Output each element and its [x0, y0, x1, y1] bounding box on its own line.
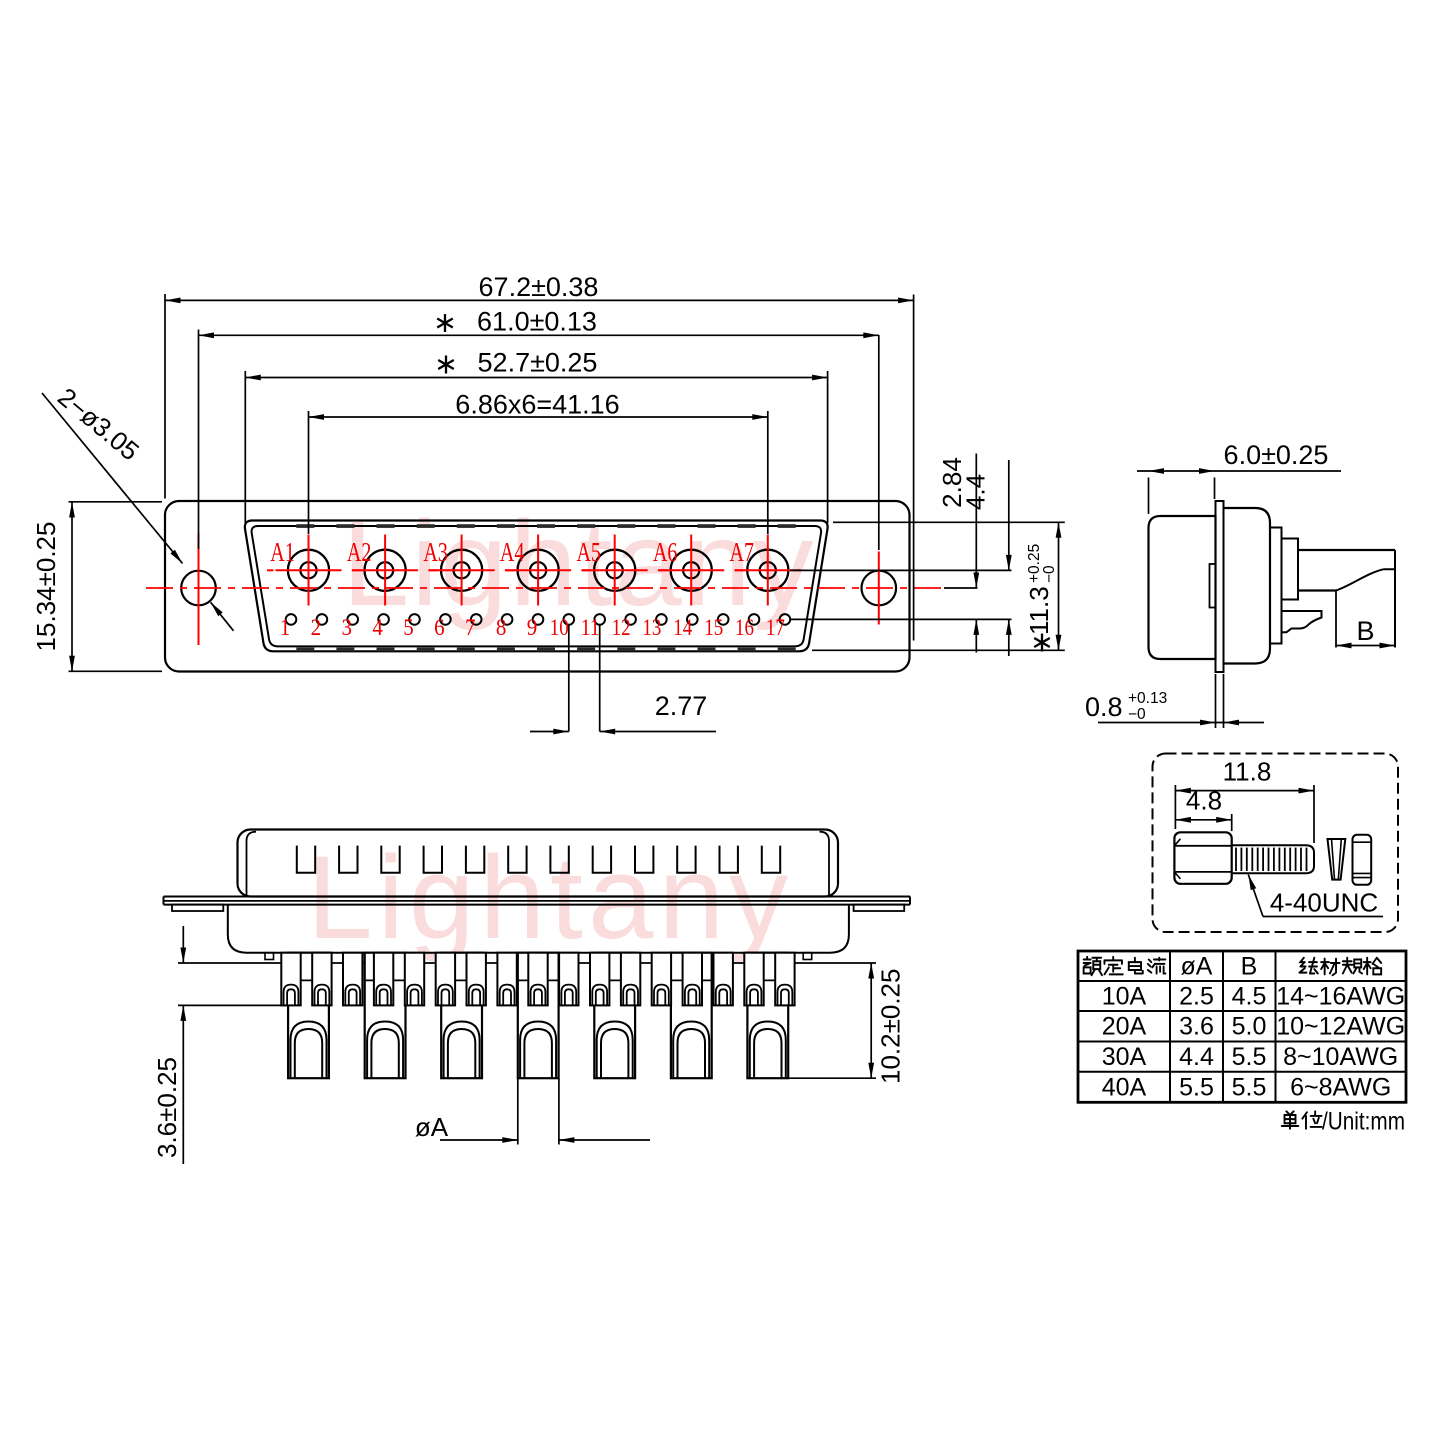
- svg-text:4.5: 4.5: [1232, 983, 1267, 1011]
- svg-text:A3: A3: [423, 537, 448, 567]
- svg-text:4.4: 4.4: [960, 474, 990, 510]
- svg-text:6.0±0.25: 6.0±0.25: [1224, 440, 1329, 470]
- svg-text:3: 3: [341, 615, 352, 640]
- svg-text:52.7±0.25: 52.7±0.25: [478, 348, 598, 378]
- svg-text:4: 4: [372, 615, 383, 640]
- svg-text:13: 13: [642, 615, 661, 640]
- svg-text:4.8: 4.8: [1186, 786, 1222, 816]
- svg-text:14: 14: [673, 615, 692, 640]
- svg-text:A7: A7: [730, 537, 755, 567]
- svg-text:10A: 10A: [1102, 983, 1147, 1011]
- svg-text:8~10AWG: 8~10AWG: [1283, 1043, 1398, 1071]
- svg-text:A6: A6: [653, 537, 678, 567]
- svg-text:B: B: [1356, 616, 1374, 646]
- svg-text:6.86x6=41.16: 6.86x6=41.16: [455, 390, 619, 420]
- svg-text:−0: −0: [1128, 706, 1146, 723]
- svg-text:2: 2: [311, 615, 322, 640]
- svg-text:5.5: 5.5: [1179, 1074, 1214, 1102]
- svg-text:14~16AWG: 14~16AWG: [1276, 983, 1405, 1011]
- svg-text:2.77: 2.77: [655, 691, 708, 721]
- svg-text:10: 10: [550, 615, 569, 640]
- svg-text:20A: 20A: [1102, 1013, 1147, 1041]
- svg-text:4.4: 4.4: [1179, 1043, 1214, 1071]
- svg-text:0.8: 0.8: [1085, 692, 1123, 722]
- svg-text:17: 17: [766, 615, 785, 640]
- svg-text:5: 5: [403, 615, 414, 640]
- svg-text:4-40UNC: 4-40UNC: [1270, 888, 1378, 918]
- svg-text:øA: øA: [415, 1112, 449, 1142]
- svg-text:5.0: 5.0: [1232, 1013, 1267, 1041]
- svg-text:2.5: 2.5: [1179, 983, 1214, 1011]
- svg-text:9: 9: [527, 615, 538, 640]
- svg-text:11: 11: [581, 615, 600, 640]
- svg-text:/Unit:mm: /Unit:mm: [1322, 1108, 1405, 1136]
- svg-text:A2: A2: [347, 537, 372, 567]
- svg-text:8: 8: [496, 615, 507, 640]
- svg-text:A5: A5: [576, 537, 601, 567]
- svg-text:11.3: 11.3: [1024, 586, 1054, 635]
- svg-text:61.0±0.13: 61.0±0.13: [477, 307, 597, 337]
- svg-text:5.5: 5.5: [1232, 1043, 1267, 1071]
- svg-text:1: 1: [280, 615, 291, 640]
- svg-text:16: 16: [735, 615, 754, 640]
- svg-text:15.34±0.25: 15.34±0.25: [31, 522, 61, 652]
- svg-text:øA: øA: [1181, 953, 1213, 981]
- svg-text:A4: A4: [500, 537, 525, 567]
- svg-text:3.6: 3.6: [1179, 1013, 1214, 1041]
- svg-text:67.2±0.38: 67.2±0.38: [479, 272, 599, 302]
- svg-text:11.8: 11.8: [1223, 757, 1272, 787]
- svg-text:30A: 30A: [1102, 1043, 1147, 1071]
- svg-text:10.2±0.25: 10.2±0.25: [876, 969, 906, 1084]
- svg-text:10~12AWG: 10~12AWG: [1276, 1013, 1405, 1041]
- svg-text:7: 7: [465, 615, 476, 640]
- svg-text:A1: A1: [270, 537, 295, 567]
- svg-text:15: 15: [704, 615, 723, 640]
- svg-text:40A: 40A: [1102, 1074, 1147, 1102]
- svg-text:−0: −0: [1041, 565, 1058, 583]
- svg-text:12: 12: [612, 615, 631, 640]
- svg-text:6: 6: [434, 615, 445, 640]
- svg-text:6~8AWG: 6~8AWG: [1290, 1074, 1391, 1102]
- svg-text:+0.13: +0.13: [1128, 690, 1167, 707]
- svg-text:3.6±0.25: 3.6±0.25: [152, 1057, 182, 1158]
- svg-text:5.5: 5.5: [1232, 1074, 1267, 1102]
- svg-text:B: B: [1241, 953, 1258, 981]
